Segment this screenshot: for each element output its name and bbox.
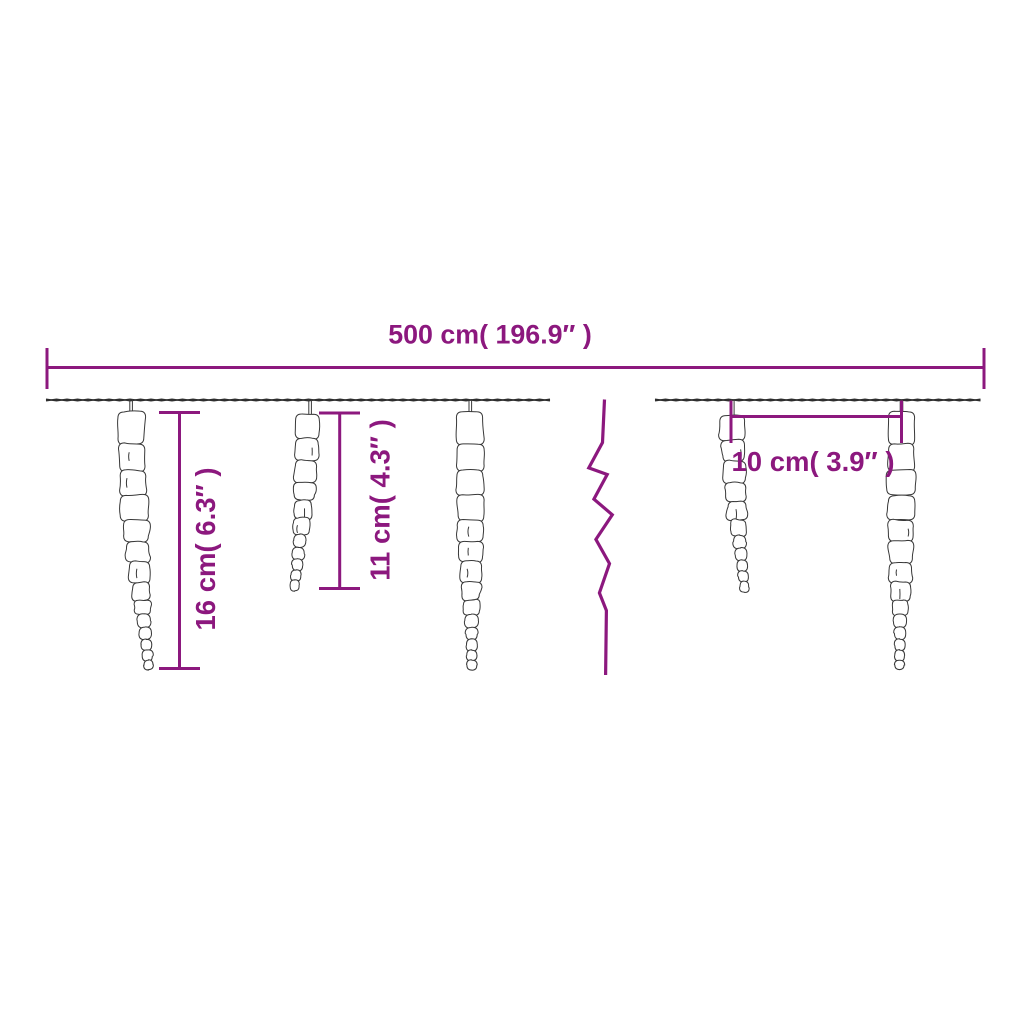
svg-text:500 cm( 196.9″ ): 500 cm( 196.9″ ) xyxy=(388,320,592,350)
svg-text:11 cm( 4.3″ ): 11 cm( 4.3″ ) xyxy=(365,419,396,580)
svg-text:10 cm( 3.9″ ): 10 cm( 3.9″ ) xyxy=(732,446,895,477)
svg-text:16 cm( 6.3″ ): 16 cm( 6.3″ ) xyxy=(190,468,221,631)
